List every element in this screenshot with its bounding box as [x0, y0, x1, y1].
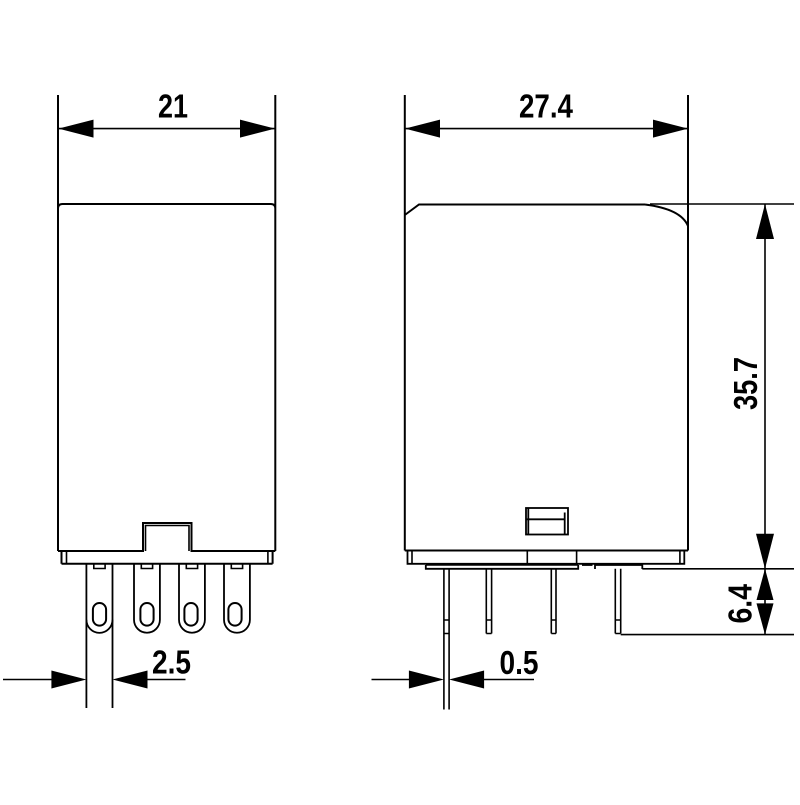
svg-text:2.5: 2.5	[152, 645, 191, 682]
svg-text:21: 21	[158, 89, 188, 126]
svg-text:35.7: 35.7	[728, 357, 765, 410]
svg-text:27.4: 27.4	[519, 89, 573, 126]
svg-text:6.4: 6.4	[723, 584, 760, 624]
svg-text:0.5: 0.5	[500, 645, 539, 682]
